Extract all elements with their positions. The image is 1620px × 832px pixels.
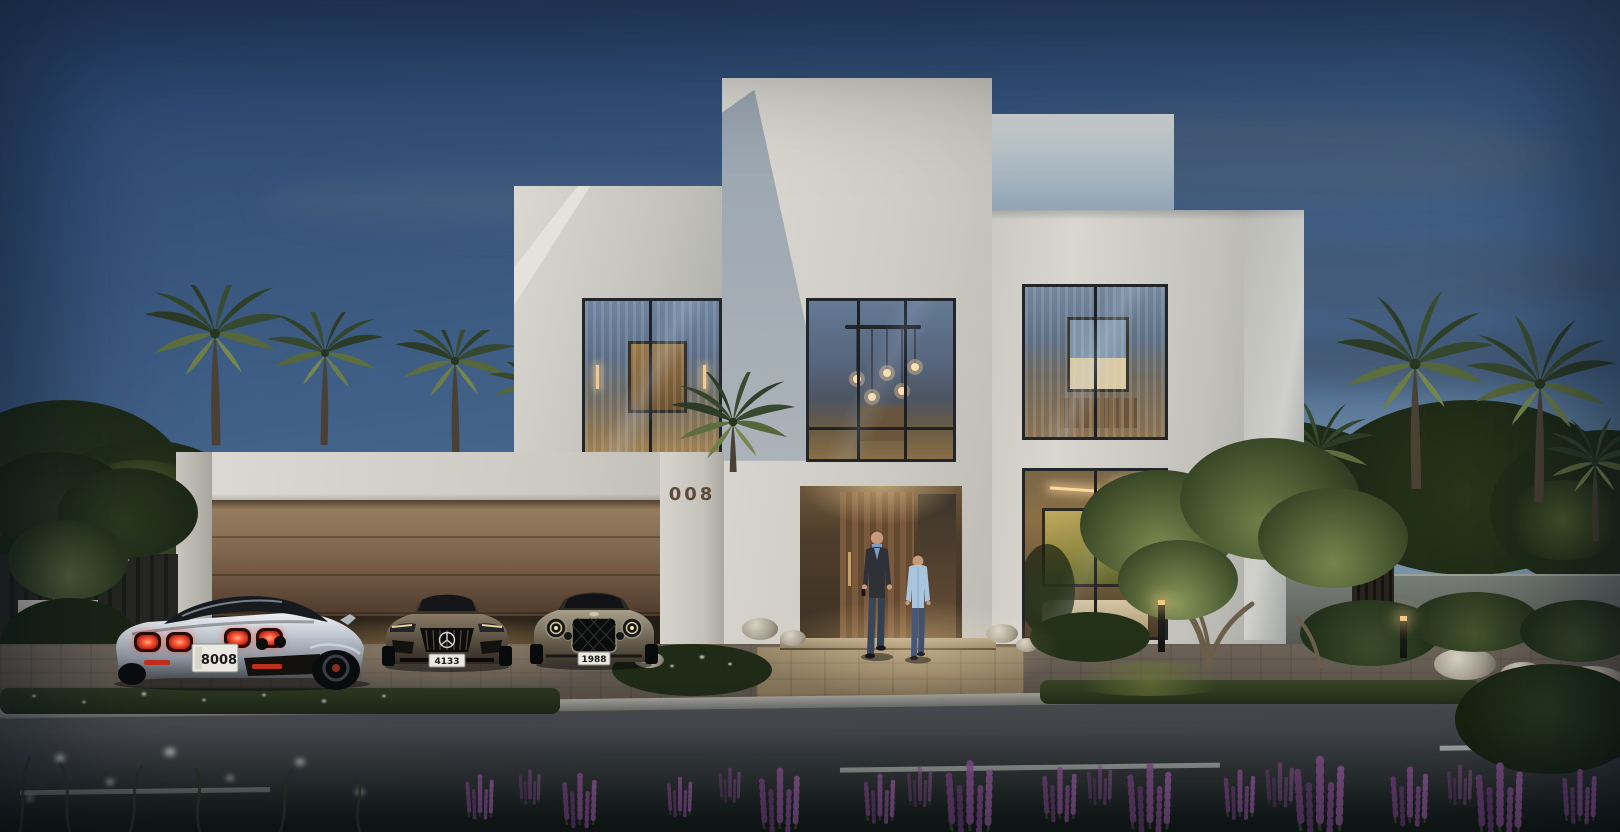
- sports-coupe-in-garage: 4133: [376, 580, 518, 672]
- license-plate-text: 8008: [201, 653, 237, 668]
- glass-reflection: [1025, 287, 1165, 437]
- bollard-light-cap: [1158, 600, 1165, 605]
- rear-roof-block: [990, 114, 1174, 214]
- boulder: [986, 624, 1018, 643]
- bollard-light-cap: [1400, 616, 1407, 621]
- palm-tree: [1535, 400, 1620, 580]
- atrium-glass-wall: [806, 298, 956, 462]
- boulder: [1434, 648, 1496, 680]
- boy-in-blue-shirt: [900, 552, 936, 664]
- man-in-suit: [856, 528, 898, 662]
- palm-tree: [255, 312, 395, 458]
- door-handle: [848, 552, 851, 586]
- agave-shrubs: [1410, 592, 1540, 652]
- glass-reflection: [809, 301, 953, 459]
- bollard-light: [1400, 620, 1407, 658]
- license-plate-text: 1988: [581, 655, 606, 665]
- palm-tree: [658, 372, 808, 472]
- luxury-car-in-garage: 1988: [526, 580, 662, 670]
- bollard-light: [1158, 604, 1165, 652]
- purple-salvia-flowers: [360, 716, 1620, 832]
- shrub: [1030, 612, 1150, 662]
- license-plate-text: 4133: [434, 657, 459, 667]
- house-number: 008: [660, 484, 724, 505]
- olive-canopy: [1258, 488, 1408, 588]
- garage-right-pillar: 008: [660, 452, 724, 660]
- foreground-grass-stems: [0, 740, 430, 832]
- silver-supercar: 8008: [104, 572, 374, 692]
- villa-dusk-render: 008: [0, 0, 1620, 832]
- boulder: [742, 618, 778, 640]
- door-top-shadow: [212, 500, 660, 510]
- bedroom-window-upper-right: [1022, 284, 1168, 440]
- olive-canopy: [1118, 540, 1238, 620]
- boulder: [780, 630, 806, 646]
